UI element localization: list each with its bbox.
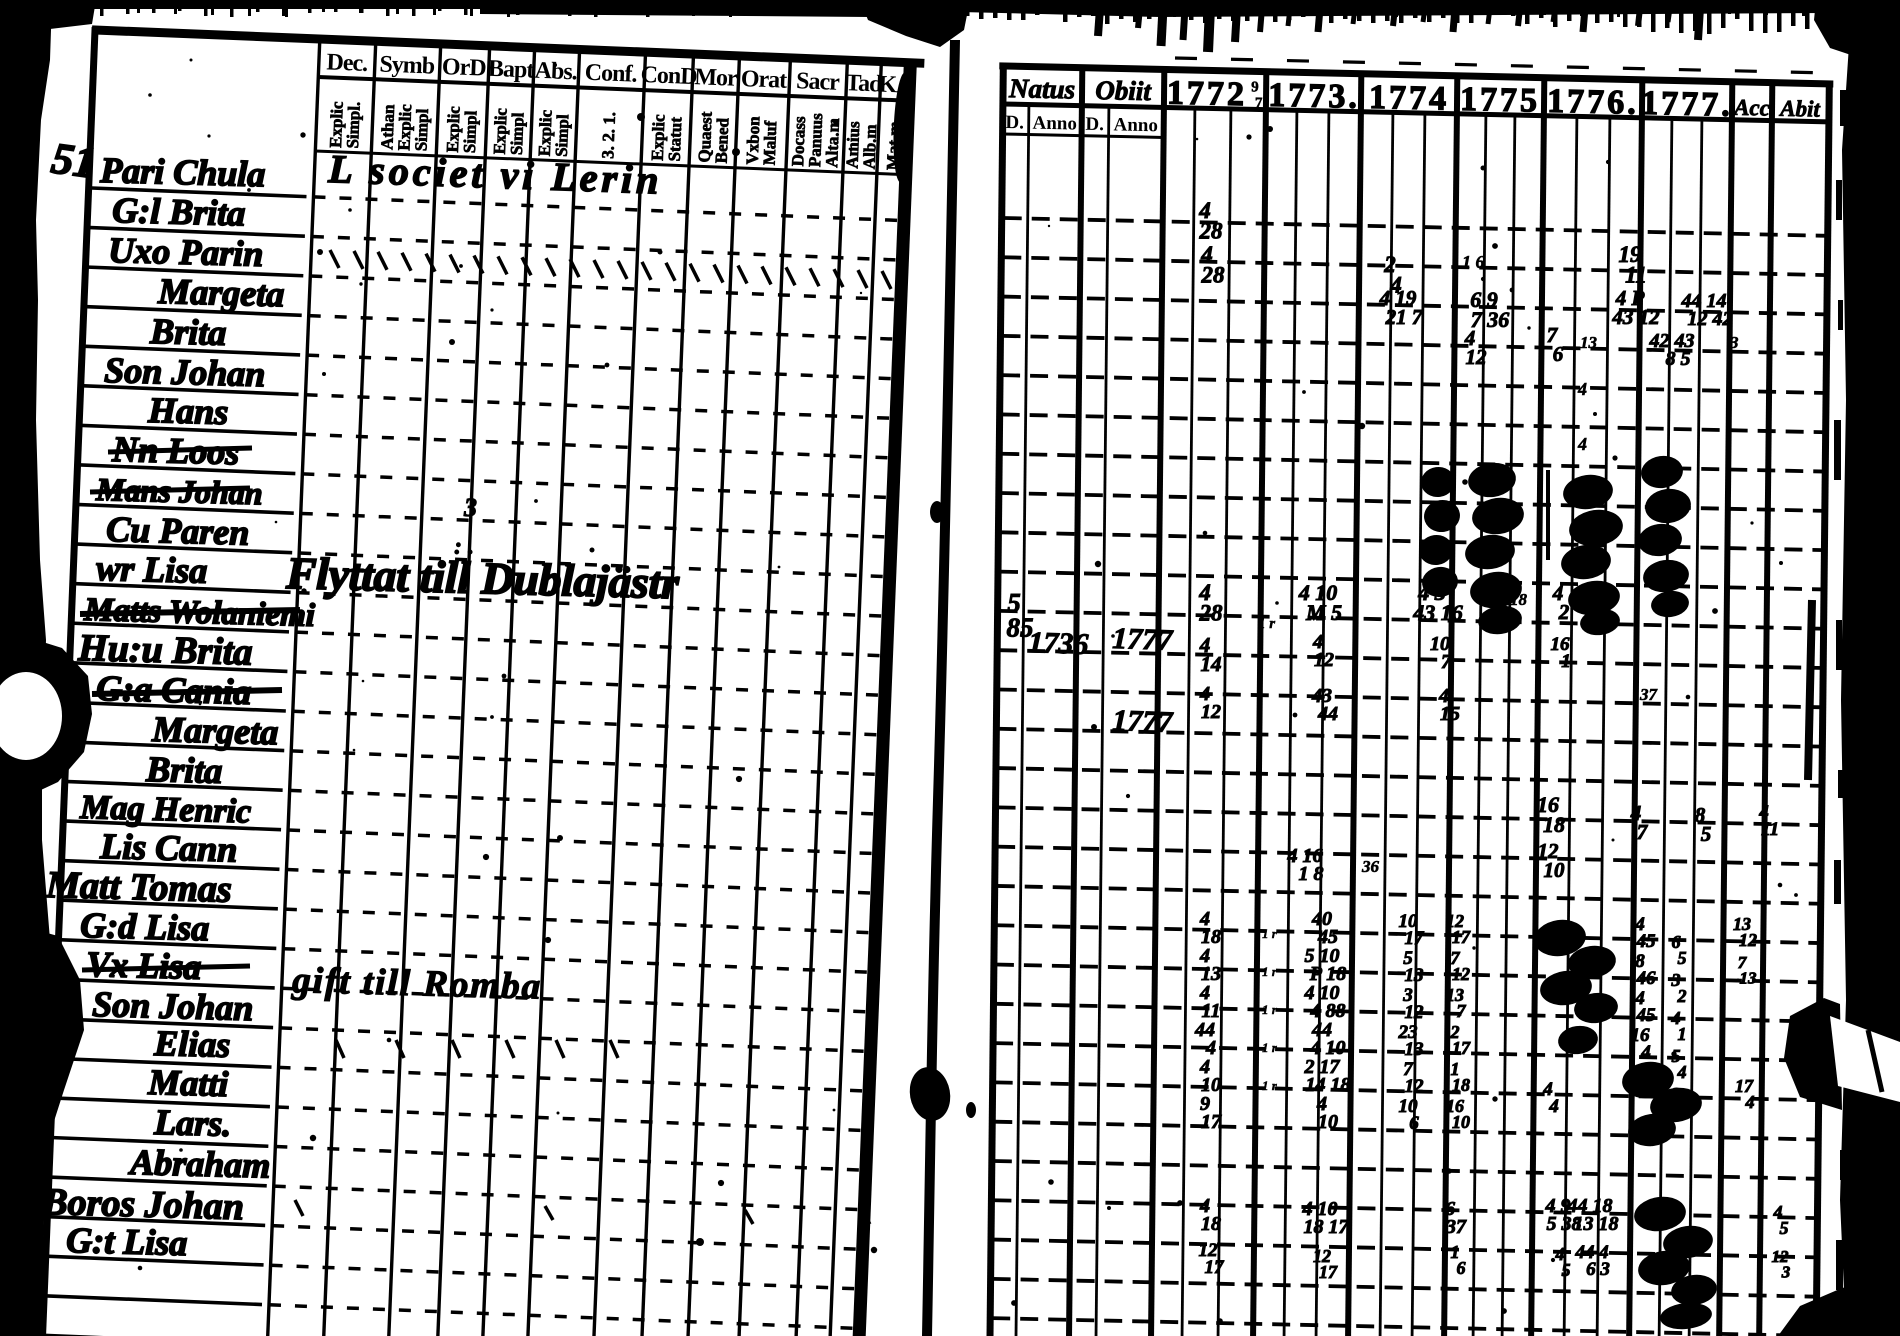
svg-text:14: 14 (1201, 652, 1222, 676)
svg-text:12 42: 12 42 (1688, 308, 1733, 330)
svg-text:12: 12 (1466, 345, 1488, 369)
svg-text:18 17: 18 17 (1304, 1216, 1350, 1238)
svg-text:1: 1 (1678, 1024, 1687, 1044)
svg-text:9: 9 (1251, 79, 1259, 95)
svg-text:Abit: Abit (1778, 96, 1820, 122)
svg-text:13: 13 (1405, 965, 1424, 986)
svg-text:Uxo Parin: Uxo Parin (108, 230, 264, 274)
svg-text:1: 1 (1561, 651, 1571, 672)
svg-text:Hans: Hans (147, 390, 229, 432)
svg-text:28: 28 (1199, 601, 1224, 626)
svg-text:Obiit: Obiit (1095, 75, 1152, 106)
svg-text:Brita: Brita (149, 311, 227, 353)
svg-text:1773.: 1773. (1268, 77, 1360, 116)
svg-text:1777.: 1777. (1641, 85, 1733, 124)
svg-text:2: 2 (1558, 600, 1570, 624)
svg-text:6: 6 (1457, 1258, 1466, 1278)
svg-text:3: 3 (1781, 1262, 1791, 1281)
svg-text:1776.: 1776. (1547, 83, 1639, 122)
svg-text:Pari Chula: Pari Chula (99, 150, 266, 194)
svg-text:gift till Romba: gift till Romba (291, 960, 543, 1008)
svg-text:Orat: Orat (740, 66, 787, 94)
svg-text:43 12: 43 12 (1611, 305, 1660, 329)
svg-text:1 r: 1 r (1262, 926, 1278, 941)
svg-text:2: 2 (1677, 986, 1687, 1006)
svg-text:Mag Henric: Mag Henric (79, 789, 252, 830)
svg-text:Statut: Statut (665, 116, 686, 161)
svg-text:4: 4 (1548, 1096, 1559, 1117)
svg-text:D.: D. (1005, 112, 1024, 133)
svg-text:17: 17 (1452, 1038, 1471, 1058)
svg-text:7 36: 7 36 (1471, 307, 1510, 332)
svg-text:10: 10 (1452, 1112, 1470, 1132)
svg-text:28: 28 (1199, 219, 1224, 244)
svg-text:13 18: 13 18 (1574, 1213, 1619, 1235)
svg-text:G:d Lisa: G:d Lisa (80, 905, 210, 948)
svg-text:Lars.: Lars. (153, 1102, 232, 1144)
svg-text:4: 4 (1577, 379, 1587, 399)
svg-text:12: 12 (1314, 649, 1334, 671)
svg-text:1 r: 1 r (1262, 1078, 1278, 1093)
svg-text:Natus: Natus (1008, 73, 1075, 104)
svg-text:G:l Brita: G:l Brita (112, 190, 246, 233)
svg-text:17: 17 (1319, 1262, 1338, 1282)
svg-text:Lis Cann: Lis Cann (99, 826, 238, 870)
svg-text:ConD: ConD (640, 62, 698, 90)
svg-text:10: 10 (1544, 858, 1566, 882)
svg-text:Simpl: Simpl (411, 108, 432, 152)
svg-text:1775: 1775 (1460, 81, 1540, 120)
svg-text:3: 3 (463, 493, 477, 522)
svg-text:Abraham: Abraham (128, 1142, 271, 1186)
svg-text:12: 12 (1405, 1076, 1425, 1097)
svg-text:Alta.m: Alta.m (822, 118, 843, 168)
svg-text:45: 45 (1636, 931, 1657, 952)
svg-text:8 5: 8 5 (1666, 348, 1691, 370)
svg-text:M 5: M 5 (1305, 600, 1342, 625)
svg-text:Symb: Symb (379, 51, 435, 79)
svg-text:17: 17 (1405, 928, 1426, 949)
svg-text:36: 36 (1361, 857, 1380, 876)
svg-text:5: 5 (1701, 822, 1712, 846)
svg-text:6: 6 (1409, 1113, 1419, 1134)
svg-text:Mat.m: Mat.m (883, 121, 904, 170)
svg-text:5: 5 (1678, 948, 1687, 968)
svg-text:Anno: Anno (1032, 113, 1077, 135)
svg-text:13: 13 (1740, 968, 1758, 987)
svg-text:37: 37 (1639, 685, 1659, 704)
svg-text:1 r: 1 r (1262, 964, 1278, 979)
svg-text:17: 17 (1452, 927, 1471, 947)
svg-text:Alb.m: Alb.m (860, 124, 881, 170)
svg-text:17: 17 (1205, 1257, 1226, 1278)
svg-text:12: 12 (1405, 1002, 1425, 1023)
svg-text:Margeta: Margeta (151, 709, 279, 752)
svg-text:43 16: 43 16 (1412, 600, 1463, 625)
svg-text:Flyttat till Dublajästr: Flyttat till Dublajästr (285, 548, 680, 608)
svg-text:7: 7 (1637, 820, 1649, 844)
svg-text:18: 18 (1510, 590, 1528, 609)
svg-text:1777: 1777 (1112, 704, 1174, 739)
svg-text:3: 3 (1729, 333, 1739, 352)
svg-text:1774: 1774 (1369, 79, 1449, 118)
svg-text:11: 11 (1625, 263, 1647, 288)
svg-text:wr Lisa: wr Lisa (96, 548, 208, 591)
svg-text:1 6: 1 6 (1462, 252, 1485, 272)
svg-text:13: 13 (1580, 333, 1598, 352)
svg-text:18: 18 (1452, 1075, 1470, 1095)
svg-text:1772: 1772 (1167, 75, 1247, 114)
svg-text:Bened: Bened (712, 117, 733, 164)
svg-text:15: 15 (1440, 703, 1460, 725)
svg-text:Son Johan: Son Johan (92, 984, 254, 1028)
svg-text:12: 12 (1739, 930, 1757, 950)
svg-text:Bapt: Bapt (488, 56, 535, 84)
svg-text:Dec.: Dec. (326, 49, 368, 77)
svg-text:4: 4 (1577, 434, 1587, 454)
svg-text:7: 7 (1457, 1001, 1467, 1021)
svg-text:44: 44 (1317, 703, 1338, 725)
svg-text:1 r: 1 r (1262, 1040, 1278, 1055)
svg-text:Sacr: Sacr (796, 68, 841, 96)
svg-text:1 r: 1 r (1262, 1002, 1278, 1017)
svg-text:7: 7 (1441, 651, 1452, 673)
svg-text:KA: KA (878, 71, 915, 98)
svg-text:Matt Tomas: Matt Tomas (45, 864, 233, 911)
svg-text:10: 10 (1318, 1111, 1338, 1133)
svg-text:21 7: 21 7 (1385, 305, 1424, 329)
svg-text:5: 5 (1562, 1260, 1571, 1280)
svg-text:Simpl: Simpl (507, 112, 528, 156)
svg-text:17: 17 (1201, 1111, 1222, 1133)
svg-text:46: 46 (1636, 968, 1657, 989)
svg-text:Anno: Anno (1113, 114, 1158, 136)
svg-text:1736: 1736 (1028, 626, 1089, 661)
svg-text:18: 18 (1201, 1213, 1221, 1235)
svg-text:Abs.: Abs. (534, 58, 577, 86)
svg-text:Elias: Elias (153, 1023, 231, 1065)
svg-text:3. 2. 1.: 3. 2. 1. (598, 112, 619, 159)
svg-text:Maluf: Maluf (760, 120, 781, 165)
svg-text:Hu:u Brita: Hu:u Brita (77, 627, 253, 674)
svg-text:37: 37 (1445, 1216, 1467, 1238)
svg-text:51: 51 (49, 133, 99, 188)
svg-text:Simpl.: Simpl. (343, 101, 364, 149)
svg-text:45: 45 (1636, 1005, 1657, 1026)
svg-text:OrD: OrD (441, 54, 486, 82)
svg-text:G:t Lisa: G:t Lisa (66, 1220, 188, 1263)
svg-text:Brita: Brita (145, 749, 223, 791)
svg-text:D.: D. (1085, 114, 1104, 135)
svg-text:6 3: 6 3 (1586, 1259, 1610, 1280)
svg-text:Son Johan: Son Johan (104, 350, 266, 394)
svg-text:1777: 1777 (1112, 622, 1174, 657)
svg-text:14 18: 14 18 (1306, 1074, 1351, 1096)
svg-text:4: 4 (1677, 1062, 1687, 1082)
svg-text:18: 18 (1543, 812, 1565, 837)
svg-text:12: 12 (1452, 964, 1470, 984)
svg-text:6: 6 (1553, 342, 1564, 366)
svg-text:Acc: Acc (1732, 95, 1770, 121)
svg-text:Conf.: Conf. (584, 60, 637, 88)
svg-text:Matti: Matti (147, 1062, 229, 1104)
svg-text:1 r: 1 r (1258, 616, 1275, 632)
svg-text:Simpl: Simpl (460, 110, 481, 154)
svg-text:Simpl: Simpl (552, 114, 573, 158)
svg-text:5: 5 (1780, 1218, 1789, 1238)
svg-text:13: 13 (1405, 1039, 1424, 1060)
svg-text:Margeta: Margeta (157, 271, 285, 314)
svg-text:4: 4 (1640, 1042, 1651, 1063)
svg-text:7: 7 (1255, 95, 1263, 111)
svg-text:Cu Paren: Cu Paren (106, 509, 250, 553)
svg-text:11: 11 (1761, 819, 1779, 840)
svg-text:28: 28 (1201, 263, 1226, 288)
svg-text:1 8: 1 8 (1299, 863, 1324, 885)
svg-text:Mor: Mor (694, 64, 739, 92)
svg-text:4: 4 (1745, 1092, 1755, 1112)
svg-text:12: 12 (1201, 701, 1221, 723)
